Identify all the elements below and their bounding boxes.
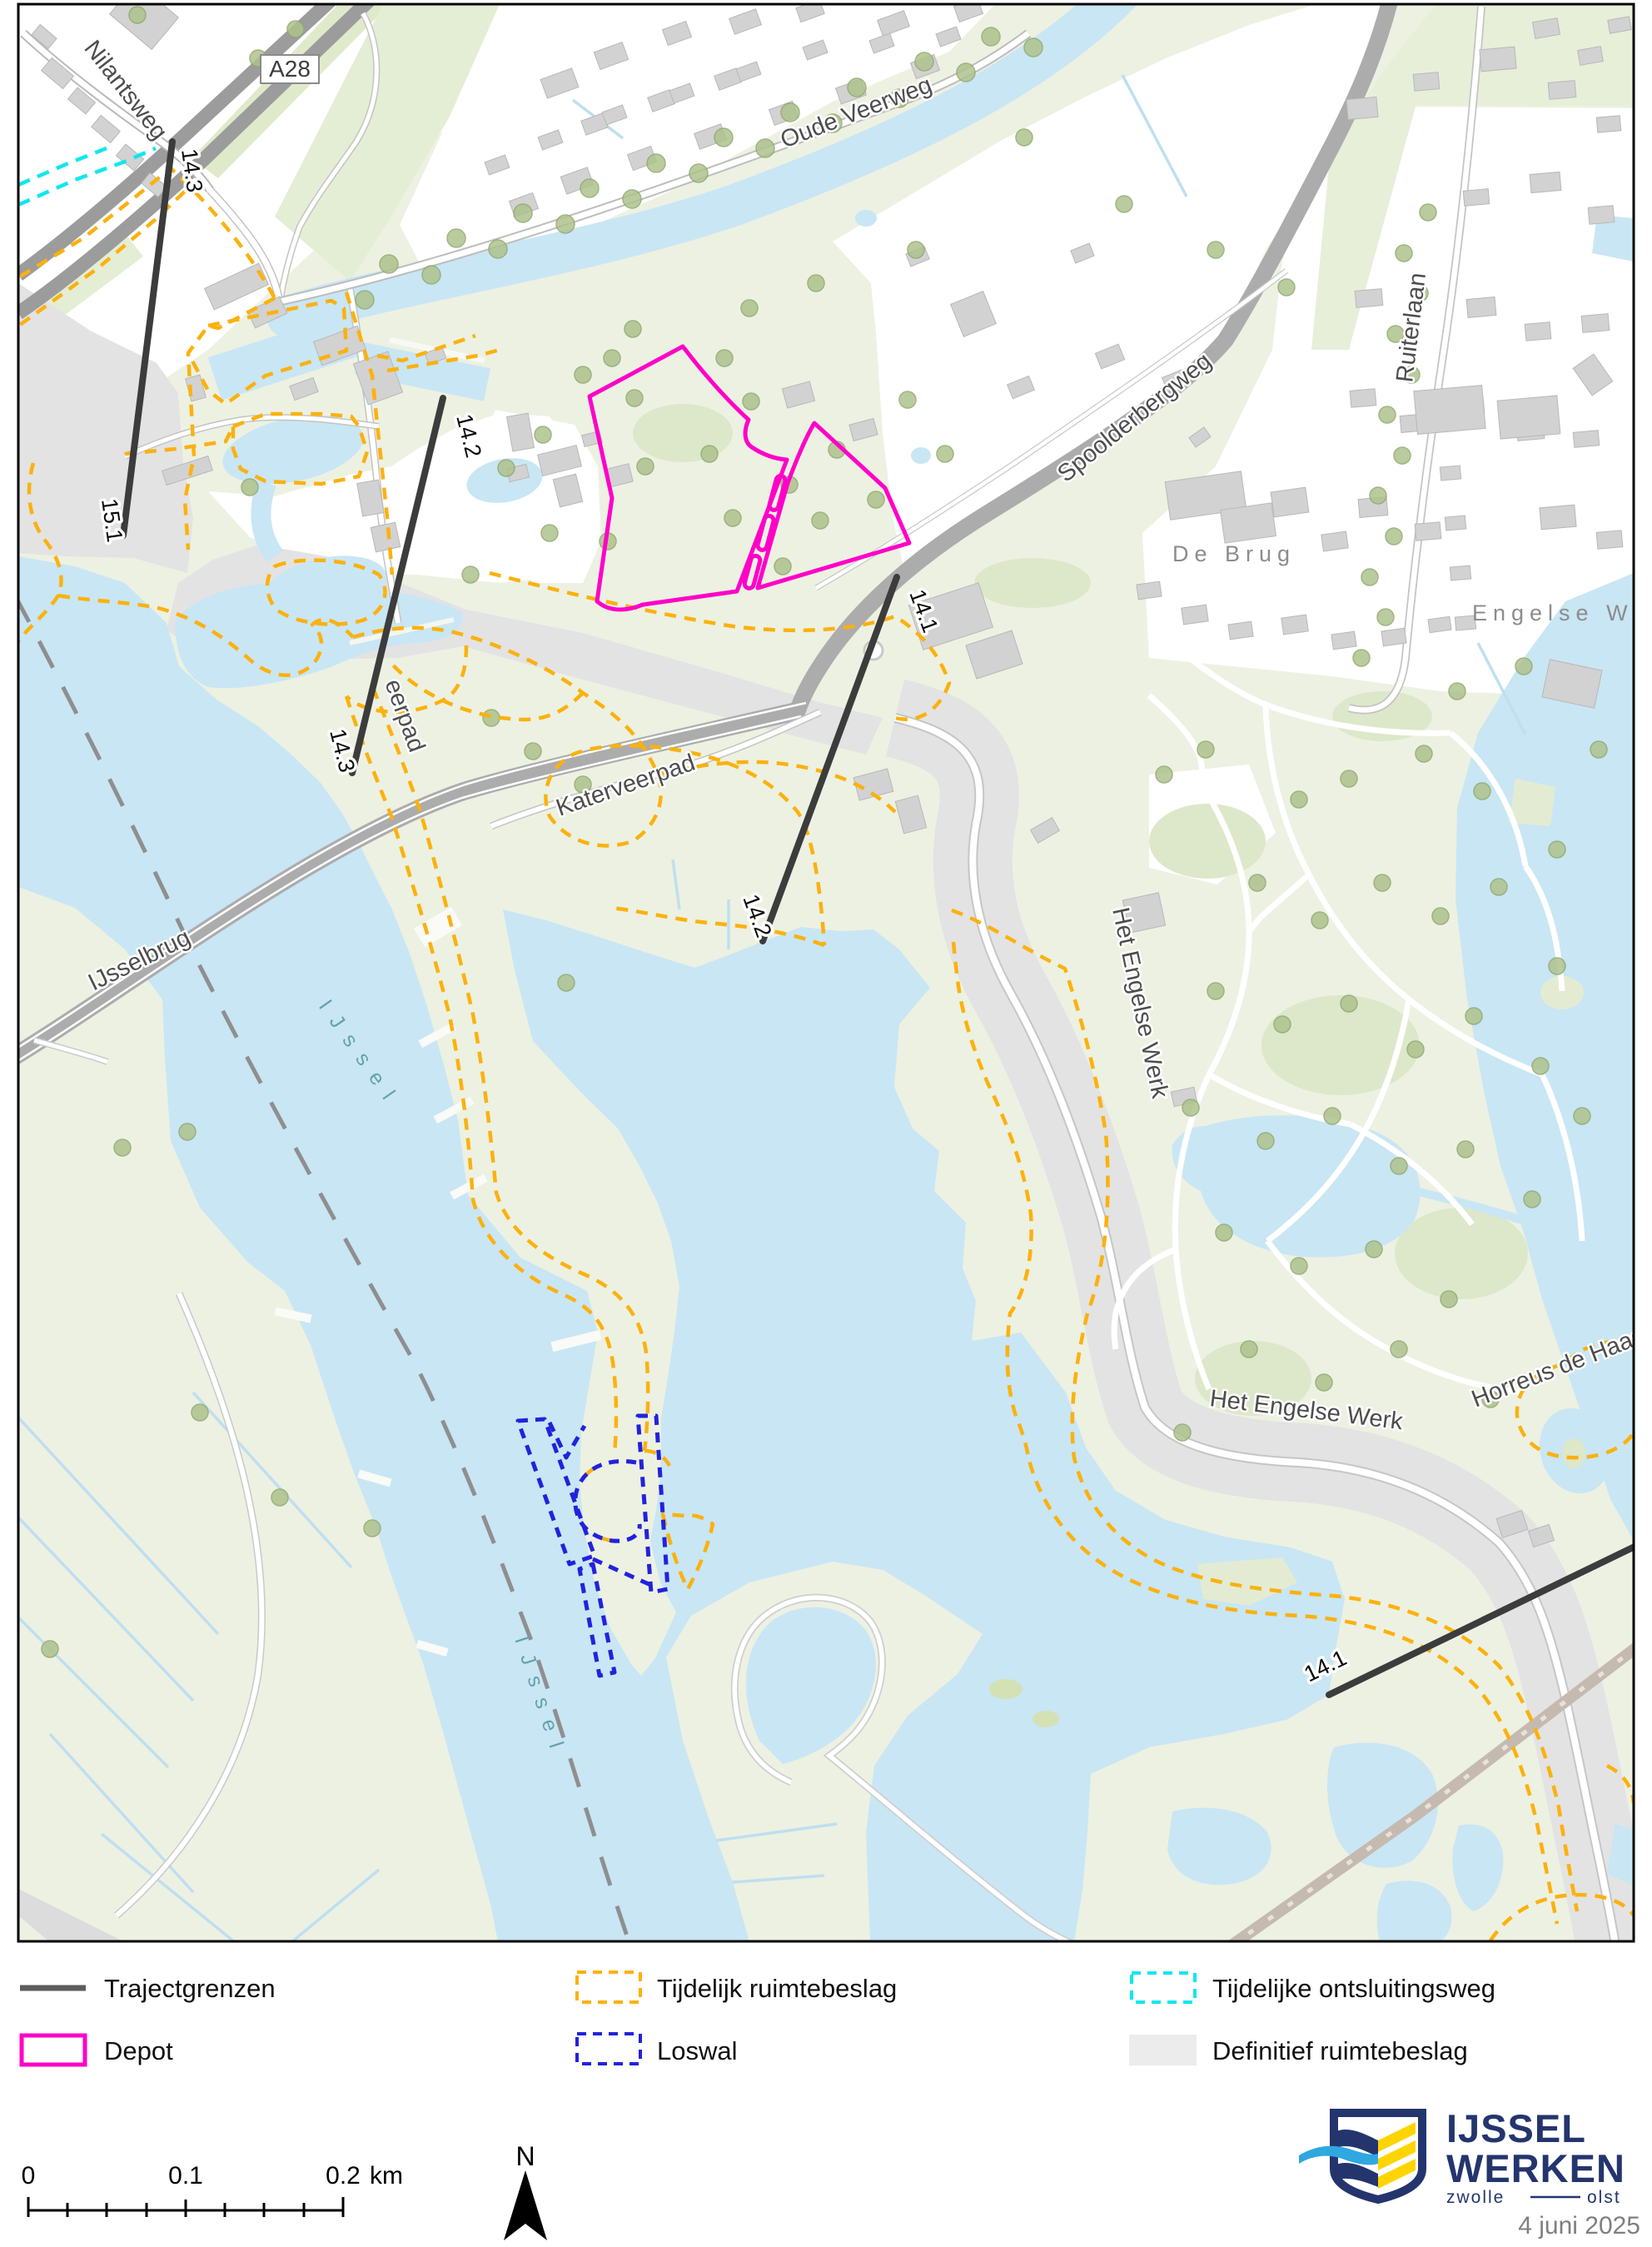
svg-text:N: N (515, 2141, 535, 2171)
svg-text:WERKEN: WERKEN (1446, 2146, 1625, 2190)
svg-text:4 juni 2025: 4 juni 2025 (1518, 2212, 1640, 2240)
svg-text:Loswal: Loswal (657, 2036, 738, 2065)
svg-text:Tijdelijke ontsluitingsweg: Tijdelijke ontsluitingsweg (1212, 1974, 1495, 2003)
svg-text:Trajectgrenzen: Trajectgrenzen (104, 1974, 276, 2003)
svg-text:0: 0 (22, 2162, 36, 2190)
svg-text:Engelse W: Engelse W (1472, 600, 1634, 625)
svg-text:IJSSEL: IJSSEL (1446, 2106, 1586, 2150)
svg-text:0.2: 0.2 (326, 2162, 361, 2190)
svg-text:km: km (370, 2162, 403, 2190)
svg-text:Tijdelijk ruimtebeslag: Tijdelijk ruimtebeslag (657, 1974, 897, 2003)
svg-text:Definitief ruimtebeslag: Definitief ruimtebeslag (1212, 2036, 1468, 2065)
svg-text:A28: A28 (269, 56, 311, 82)
svg-text:De Brug: De Brug (1172, 541, 1296, 566)
svg-text:Depot: Depot (104, 2036, 173, 2065)
svg-text:0.1: 0.1 (168, 2162, 203, 2190)
svg-text:olst: olst (1587, 2188, 1621, 2207)
svg-text:zwolle: zwolle (1446, 2188, 1505, 2207)
